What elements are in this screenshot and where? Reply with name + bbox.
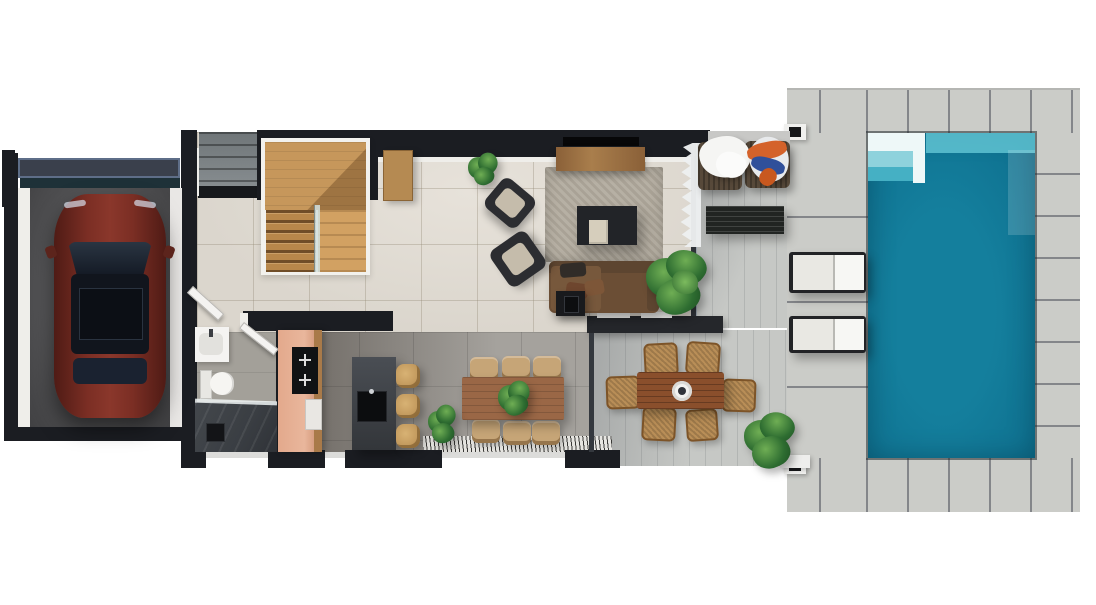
stairs-flight-down xyxy=(266,210,316,272)
dining-chair-bottom-2 xyxy=(503,421,531,445)
outdoor-chair-bottom-2 xyxy=(685,408,719,442)
wall-bottom-3 xyxy=(345,450,442,468)
pool-shelf-right xyxy=(1008,150,1035,235)
garage-lining-right xyxy=(170,188,182,427)
wall-bottom-4 xyxy=(565,450,620,468)
garage-door-shadow xyxy=(20,178,180,188)
window-bottom-3 xyxy=(442,452,565,458)
plant-kitchen-floor xyxy=(428,405,456,445)
shower-drain xyxy=(206,423,225,442)
entry-steps xyxy=(199,132,258,188)
plant-sofa-palm xyxy=(642,250,706,316)
bar-stool-1 xyxy=(396,364,420,388)
sofa-pillow-dark xyxy=(559,262,586,278)
bar-stool-2 xyxy=(396,394,420,418)
pool-deck-top xyxy=(787,88,1080,135)
outdoor-chair-top-2 xyxy=(685,341,721,376)
pool-step-2 xyxy=(868,151,914,167)
vanity-sink xyxy=(195,327,229,362)
kitchen-appliance xyxy=(305,399,322,430)
dining-chair-bottom-1 xyxy=(472,419,500,443)
dining-chair-bottom-3 xyxy=(532,421,560,445)
outdoor-chair-bottom-1 xyxy=(641,406,677,442)
plant-entry-living xyxy=(468,153,498,187)
sun-lounger-1 xyxy=(789,252,866,293)
pool-deck-right xyxy=(1035,133,1080,458)
console-table xyxy=(383,150,413,201)
lounger-headrest xyxy=(833,255,864,290)
pool-step-3 xyxy=(868,167,914,181)
accent-chair-cushion xyxy=(500,241,536,277)
burner-grate-1 xyxy=(298,353,312,367)
accent-chair-cushion xyxy=(493,186,527,220)
deck-light-top xyxy=(789,127,801,137)
burner-grate-2 xyxy=(298,373,312,387)
bowl-center xyxy=(678,387,686,395)
wall-mid-hall xyxy=(243,311,393,331)
outdoor-chair-left xyxy=(605,375,640,409)
window-bottom-1 xyxy=(206,452,268,458)
patio-slat-table xyxy=(706,206,784,234)
pool-deck-left xyxy=(787,133,868,458)
sun-lounger-2 xyxy=(789,316,866,353)
half-wall xyxy=(587,316,723,333)
table-lamp xyxy=(564,296,579,313)
basin-faucet xyxy=(209,329,213,337)
entry-doormat xyxy=(198,186,257,198)
table-bowl xyxy=(672,381,692,401)
garage-wall-bottom xyxy=(4,427,197,441)
outdoor-chair-right xyxy=(721,378,756,412)
plant-terrace-palm xyxy=(742,412,794,470)
pouf xyxy=(589,220,608,244)
island-sink xyxy=(357,391,387,422)
stairs-flight-up xyxy=(318,210,366,272)
pool-deck-bottom xyxy=(787,458,1080,512)
toilet-bowl xyxy=(210,372,234,395)
glass-divider-south xyxy=(589,333,594,452)
plant-dining-centerpiece xyxy=(496,381,530,418)
car-sunroof xyxy=(79,288,143,340)
bar-stool-3 xyxy=(396,424,420,448)
cooktop xyxy=(292,347,318,394)
garage-lining-left xyxy=(18,188,30,427)
tv-console xyxy=(556,147,645,171)
lounger-headrest xyxy=(833,319,864,350)
car-rear-window xyxy=(73,358,147,384)
pool-step-divider xyxy=(913,133,925,183)
window-bottom-2 xyxy=(325,452,345,458)
wall-bottom-1 xyxy=(181,450,206,468)
car xyxy=(54,194,166,418)
stairs-glass-rail xyxy=(314,205,320,272)
tv xyxy=(563,137,639,146)
garage-wall-stub-topleft xyxy=(2,150,15,207)
faucet xyxy=(369,389,374,394)
floor-plan-render xyxy=(0,0,1096,605)
toilet xyxy=(200,370,234,397)
garage-door xyxy=(18,158,180,178)
car-windshield xyxy=(68,242,152,274)
wall-bottom-2 xyxy=(268,450,325,468)
